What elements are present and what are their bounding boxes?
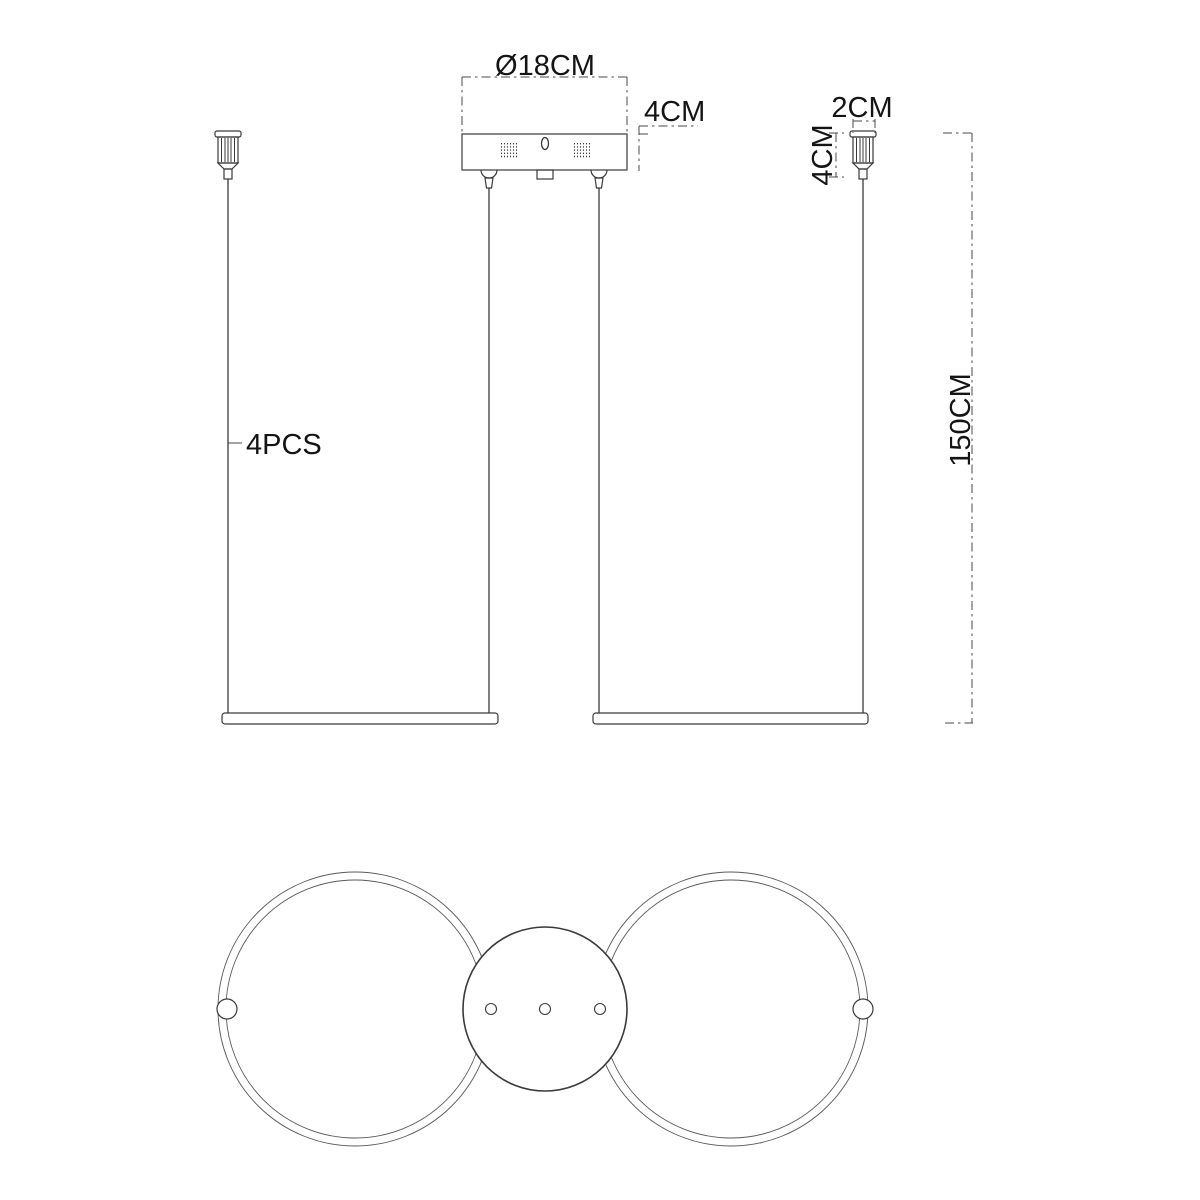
exit-neck — [485, 178, 493, 188]
right-ceiling-hanger — [850, 131, 876, 179]
ring-left-top-view — [218, 872, 492, 1146]
dim-canopy-height — [639, 126, 698, 171]
dimension-labels: Ø18CM 4CM 2CM 4CM 150CM 4PCS — [246, 50, 977, 467]
suspension-cables — [228, 179, 863, 713]
ring-right-top-view — [594, 872, 868, 1146]
hanger-cap — [850, 131, 876, 137]
ring-bar-right — [593, 713, 868, 724]
hanger-ribs — [857, 138, 870, 162]
hanger-taper — [218, 163, 238, 169]
label-canopy-diameter: Ø18CM — [495, 50, 595, 82]
side-view — [215, 131, 876, 724]
vent-hatch-right — [575, 143, 590, 159]
cable-knob-right — [853, 999, 873, 1019]
dim-canopy-diameter — [462, 77, 627, 133]
ring-inner-edge — [226, 880, 484, 1138]
ring-bar-left — [222, 713, 498, 724]
lamp-dimension-drawing: Ø18CM 4CM 2CM 4CM 150CM 4PCS — [0, 0, 1200, 1200]
exit-bump — [481, 170, 497, 178]
hanger-ribs — [222, 138, 235, 162]
label-cable-count: 4PCS — [246, 429, 322, 461]
hanger-cap — [215, 131, 241, 137]
ring-outer-edge — [218, 872, 492, 1146]
label-hanger-width: 2CM — [831, 92, 892, 124]
left-ceiling-hanger — [215, 131, 241, 179]
cord-exit-left — [481, 170, 497, 188]
canopy-box — [462, 134, 627, 170]
label-canopy-height: 4CM — [644, 96, 705, 128]
vent-hatch-left — [502, 143, 517, 159]
cord-exit-right — [591, 170, 607, 188]
keyhole-slot — [542, 138, 549, 150]
hanger-taper — [853, 163, 873, 169]
cable-knob-left — [217, 999, 237, 1019]
ring-inner-edge — [602, 880, 860, 1138]
label-drop-length: 150CM — [945, 373, 977, 467]
top-view — [217, 872, 873, 1146]
dimension-lines — [228, 77, 973, 723]
label-hanger-height: 4CM — [807, 124, 839, 185]
exit-neck — [595, 178, 603, 188]
hanger-neck — [859, 169, 867, 179]
hanger-neck — [224, 169, 232, 179]
cable-entry-notch — [537, 170, 553, 179]
ring-outer-edge — [594, 872, 868, 1146]
canopy-top-view — [463, 927, 627, 1091]
exit-bump — [591, 170, 607, 178]
canopy-front-view — [462, 134, 627, 188]
